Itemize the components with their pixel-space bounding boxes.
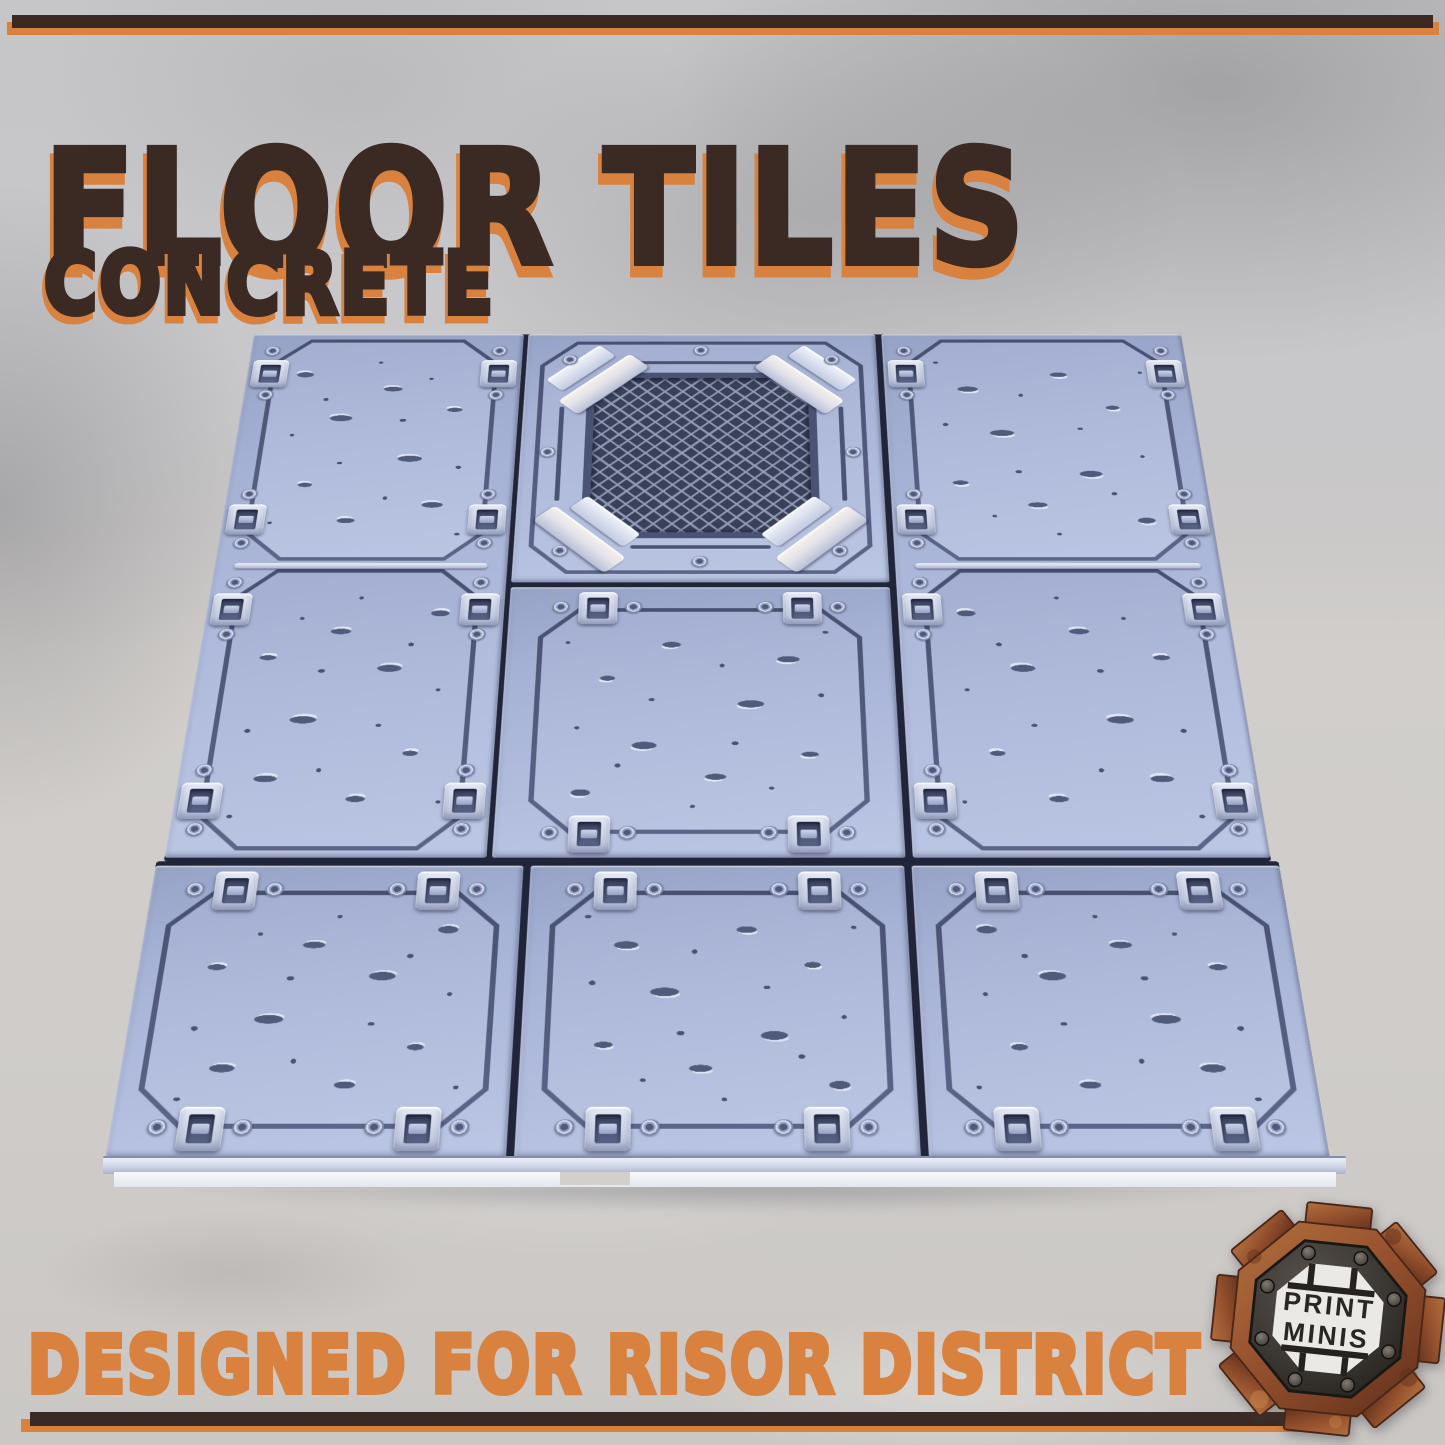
rivet [639,1119,661,1138]
clip-bracket [1145,360,1185,387]
rivet [963,1119,986,1138]
panel-rail [234,563,488,568]
clip-bracket [902,593,943,625]
rivet [845,447,863,459]
top-rule [12,15,1433,28]
rivet [225,577,246,590]
clip-bracket [783,592,823,624]
crack-texture [532,612,866,830]
rivet [927,823,948,839]
clip-bracket [887,360,925,387]
rivet [824,355,842,366]
panel-surface [139,895,496,1124]
tile-panel [933,891,1303,1129]
tile-section [164,334,1271,861]
tile-bottom-right [912,866,1330,1158]
base-edge-notch [560,1172,630,1185]
clip-bracket [467,504,507,534]
rivet [264,346,283,357]
rivet [488,390,506,402]
rivet [479,489,498,502]
rivet [838,826,859,842]
rivet [905,489,924,502]
clip-bracket [1176,872,1224,910]
rivet [1183,538,1203,551]
clip-bracket [787,815,830,852]
clip-bracket [225,504,268,534]
rivet [947,883,969,899]
rivet [1228,883,1251,899]
clip-bracket [209,593,253,625]
clip-bracket [914,783,958,819]
clip-bracket [993,1107,1042,1151]
rivet [145,1119,170,1138]
rivet [757,601,776,615]
rivet [760,826,780,842]
rivet [552,601,571,615]
tile-grate [511,334,889,582]
tile-bottom-center [514,866,921,1158]
clip-bracket [442,783,486,819]
clip-bracket [459,593,500,625]
rivet [914,629,934,643]
board-ground-shadow [85,1184,1375,1226]
clip-bracket [896,504,936,534]
clip-bracket [578,592,618,624]
rivet [491,346,509,357]
clip-bracket [250,360,290,387]
clip-bracket [974,872,1020,910]
tile-board [105,334,1330,1158]
rivet [467,883,489,899]
page-subtitle: CONCRETE [44,241,496,327]
rivet [923,764,944,779]
logo-badge: PRINT MINIS [1202,1193,1445,1444]
rivet [896,346,914,357]
rivet [829,601,848,615]
clip-bracket [174,1107,226,1151]
rivet [831,545,850,558]
clip-bracket [479,360,517,387]
tile-section [105,861,1330,1158]
clip-bracket [415,872,461,910]
clip-bracket [211,872,259,910]
rivet [1228,823,1251,839]
rivet [858,1119,881,1138]
rivet [449,1119,472,1138]
clip-bracket [593,872,637,910]
rivet [539,826,560,842]
rivet [184,823,207,839]
clip-bracket [584,1107,631,1151]
rivet [1265,1119,1290,1138]
clip-bracket [1168,504,1211,534]
panel-surface [532,612,866,830]
panel-surface [939,895,1296,1124]
panel-surface [546,895,890,1124]
tile-panel [132,891,502,1129]
footer-rule [30,1412,1320,1426]
rivet [184,883,207,899]
clip-bracket [1211,783,1258,819]
tile-under-grate [492,587,906,857]
clip-bracket [393,1107,442,1151]
rivet [693,346,710,357]
rivet [232,538,252,551]
clip-bracket [567,815,610,852]
rivet [451,823,472,839]
tile-panel [526,608,871,834]
footer-banner: DESIGNED FOR RISOR DISTRICT [28,1327,1202,1405]
rivet [773,1119,795,1138]
product-showcase: FLOOR TILES CONCRETE DESIGNED FOR RISOR … [0,0,1445,1445]
mesh-grate [589,378,813,532]
panel-rail [915,563,1201,568]
tile-panel [539,891,895,1129]
rivet [908,538,927,551]
rivet [475,538,494,551]
tile-bottom-left [105,866,523,1158]
rivet [231,1119,255,1138]
clip-bracket [798,872,842,910]
print-minis-logo: PRINT MINIS [1201,1192,1445,1445]
clip-bracket [1182,593,1226,625]
rivet [691,556,709,569]
rivet [554,1119,577,1138]
clip-bracket [1209,1107,1261,1151]
rivet [472,577,491,590]
rivet [565,883,586,899]
tile-base-edge [114,1172,1336,1187]
crack-texture [939,895,1296,1124]
rivet [849,883,870,899]
clip-bracket [804,1107,851,1151]
rivet [363,1119,387,1138]
rivet [770,883,791,899]
rivet [911,577,930,590]
rivet [1152,346,1171,357]
rivet [899,390,917,402]
rivet [1189,577,1210,590]
rivet [468,629,488,643]
rivet [456,764,477,779]
rivet [618,826,638,842]
crack-texture [546,895,890,1124]
clip-bracket [176,783,223,819]
rivet [1026,883,1048,899]
crack-texture [139,895,496,1124]
